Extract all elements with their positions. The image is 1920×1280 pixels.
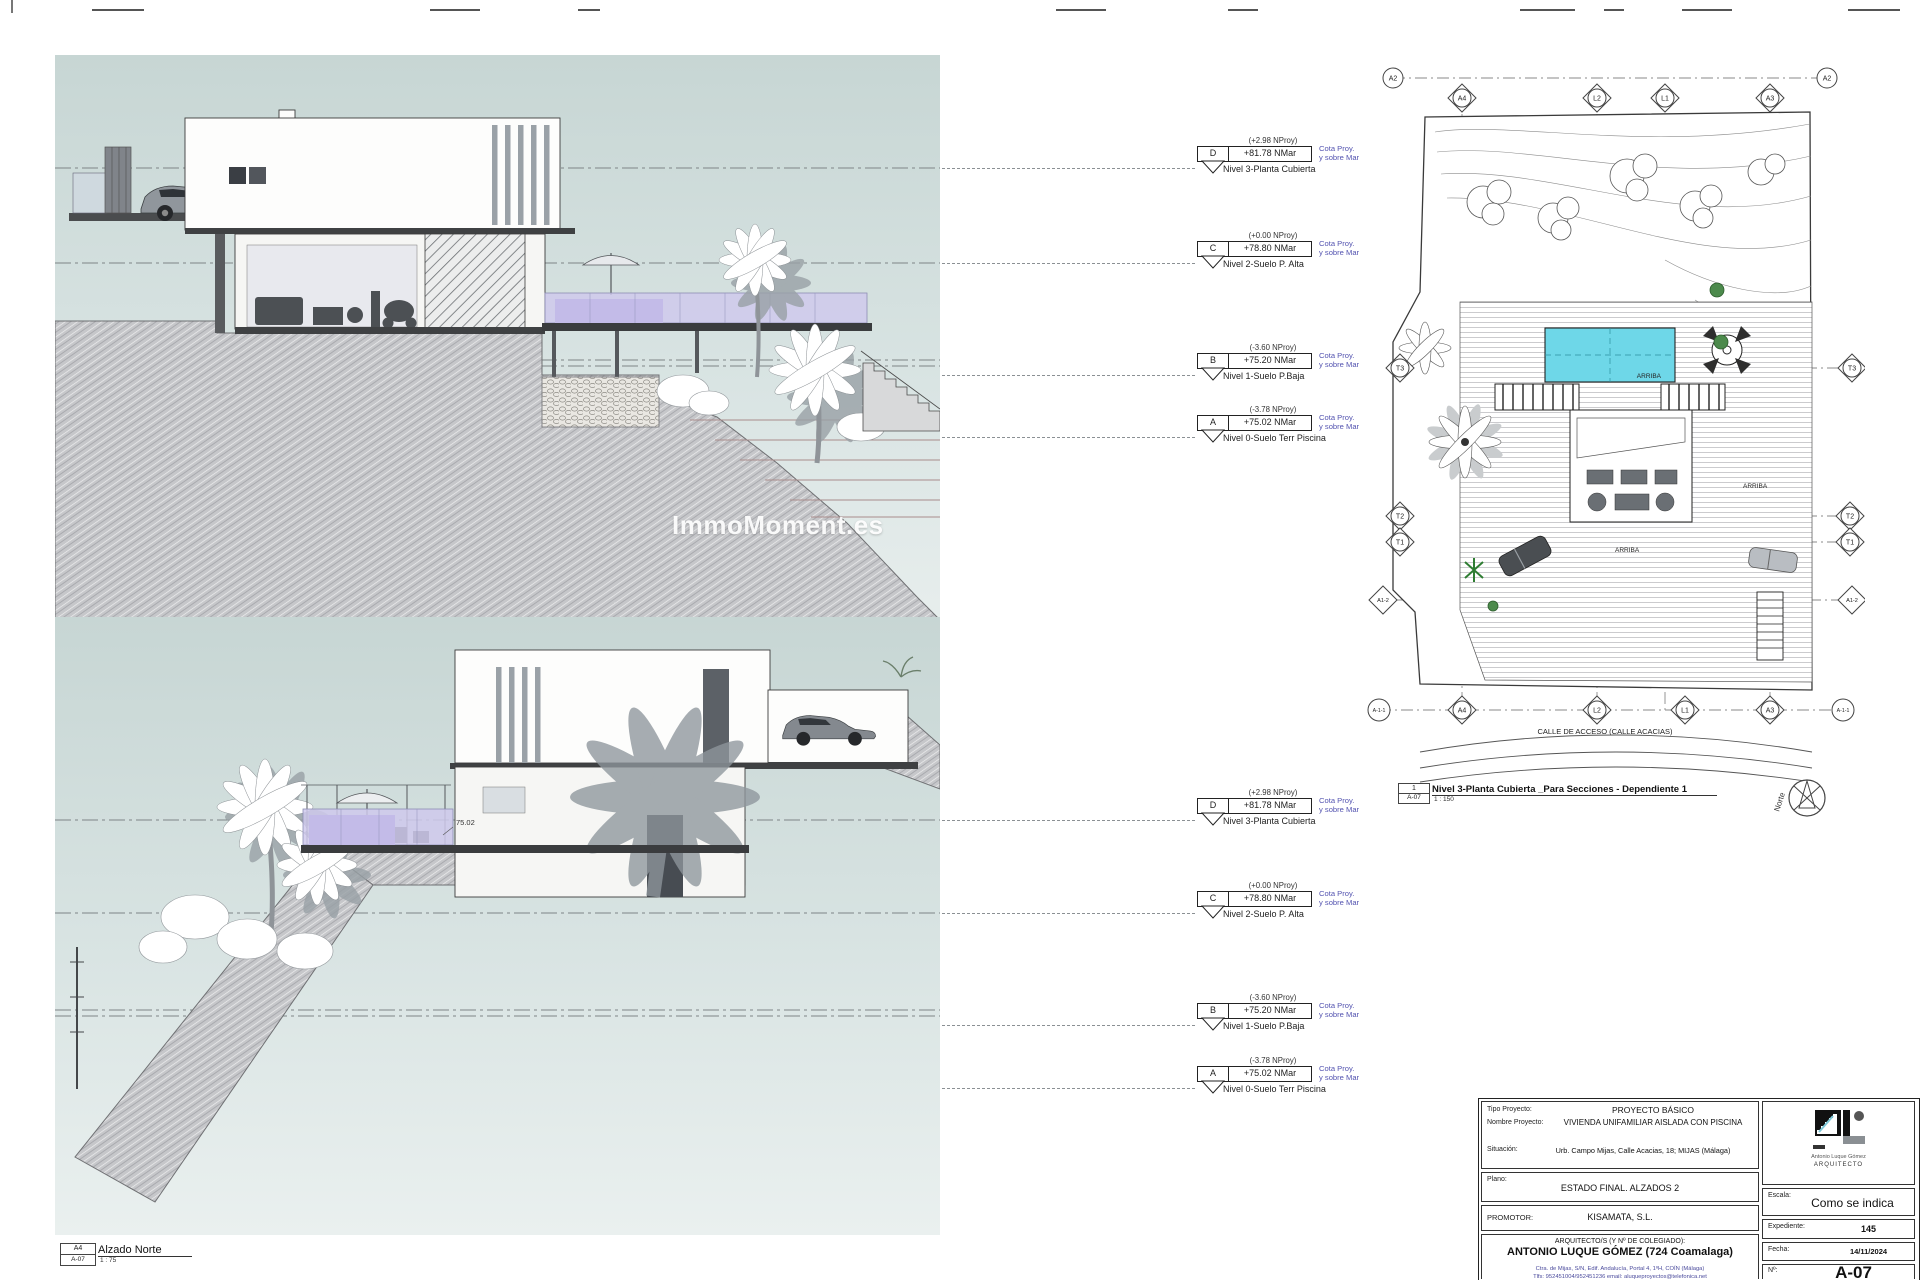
caption-title: Nivel 3-Planta Cubierta _Para Secciones …: [1432, 784, 1717, 796]
level-letter: C: [1198, 242, 1229, 256]
situacion-label: Situación:: [1487, 1146, 1518, 1153]
logo-title: ARQUITECTO: [1763, 1162, 1914, 1168]
caption-north-elevation: A4 A-07 Alzado Norte 1 : 75: [60, 1243, 260, 1267]
level-leader: [942, 168, 1195, 169]
level-name: Nivel 1-Suelo P.Baja: [1223, 1021, 1304, 1031]
elevation-south-drawing: [55, 55, 940, 655]
arquitecto-value: ANTONIO LUQUE GÓMEZ (724 Coamalaga): [1482, 1246, 1758, 1258]
arriba-label: ARRIBA: [1637, 373, 1662, 380]
stairs-plan: [1757, 592, 1783, 660]
svg-text:A-1-1: A-1-1: [1373, 708, 1386, 714]
pool-glass-balustrade: [303, 809, 453, 845]
level-notes: Cota Proy.y sobre Mar: [1319, 796, 1359, 814]
trim-mark: [1228, 9, 1258, 11]
fecha-label: Fecha:: [1768, 1246, 1789, 1253]
level-value: +75.02 NMar: [1229, 1067, 1311, 1081]
caption-sheet: A-07: [61, 1255, 95, 1264]
window: [229, 167, 246, 184]
caption-ref: A4: [61, 1244, 95, 1255]
tipo-proyecto-value: PROYECTO BÁSICO: [1552, 1105, 1754, 1115]
level-notes: Cota Proy.y sobre Mar: [1319, 1064, 1359, 1082]
logo-box: Antonio Luque Gómez ARQUITECTO: [1762, 1101, 1915, 1185]
level-name: Nivel 3-Planta Cubierta: [1223, 816, 1316, 826]
level-letter: D: [1198, 799, 1229, 813]
svg-text:A4: A4: [1458, 96, 1467, 103]
svg-text:A2: A2: [1389, 76, 1398, 83]
level-nproy: (-3.78 NProy): [1231, 405, 1315, 415]
level-arrow-icon: [1201, 812, 1225, 826]
level-value: +75.20 NMar: [1229, 354, 1311, 368]
plano-box: Plano: ESTADO FINAL. ALZADOS 2: [1481, 1172, 1759, 1202]
deck-slab: [301, 845, 749, 853]
courtyard: [1570, 410, 1692, 522]
nombre-proyecto-label: Nombre Proyecto:: [1487, 1119, 1543, 1126]
caption-scale: 1 : 150: [1434, 796, 1454, 803]
retaining-wall: [215, 221, 225, 333]
level-letter: A: [1198, 416, 1229, 430]
caption-scale: 1 : 75: [100, 1257, 116, 1264]
level-value: +75.02 NMar: [1229, 416, 1311, 430]
arquitecto-address: Ctra. de Mijas, S/N, Edif. Andalucía, Po…: [1482, 1266, 1758, 1272]
level-name: Nivel 2-Suelo P. Alta: [1223, 259, 1304, 269]
trim-mark: [1682, 9, 1732, 11]
fecha-value: 14/11/2024: [1823, 1247, 1914, 1256]
escala-label: Escala:: [1768, 1192, 1791, 1199]
level-value: +81.78 NMar: [1229, 799, 1311, 813]
arquitecto-contact: Tlfs: 952451004/952451236 email: aluquep…: [1482, 1274, 1758, 1280]
level-notes: Cota Proy.y sobre Mar: [1319, 413, 1359, 431]
level-arrow-icon: [1201, 429, 1225, 443]
promotor-box: PROMOTOR: KISAMATA, S.L.: [1481, 1205, 1759, 1231]
pool-level-label: 75.02: [456, 818, 475, 827]
level-leader: [942, 437, 1195, 438]
caption-ref: 1: [1399, 784, 1429, 794]
level-name: Nivel 3-Planta Cubierta: [1223, 164, 1316, 174]
level-name: Nivel 0-Suelo Terr Piscina: [1223, 1084, 1326, 1094]
arquitecto-label: ARQUITECTO/S (Y Nº DE COLEGIADO):: [1482, 1238, 1758, 1245]
north-label: Norte: [1772, 791, 1787, 813]
level-leader: [942, 263, 1195, 264]
level-arrow-icon: [1201, 160, 1225, 174]
road-lines: [1420, 735, 1812, 782]
chimney-tower: [105, 147, 131, 213]
level-nproy: (-3.60 NProy): [1231, 343, 1315, 353]
numero-label: Nº:: [1768, 1267, 1778, 1274]
window: [483, 787, 525, 813]
level-letter: D: [1198, 147, 1229, 161]
level-notes: Cota Proy.y sobre Mar: [1319, 1001, 1359, 1019]
expediente-label: Expediente:: [1768, 1223, 1805, 1230]
trim-mark: [1520, 9, 1575, 11]
level-value: +78.80 NMar: [1229, 892, 1311, 906]
promotor-value: KISAMATA, S.L.: [1482, 1212, 1758, 1222]
level-letter: C: [1198, 892, 1229, 906]
plano-label: Plano:: [1487, 1176, 1507, 1183]
svg-text:T3: T3: [1396, 366, 1404, 373]
level-nproy: (+2.98 NProy): [1231, 788, 1315, 798]
level-name: Nivel 2-Suelo P. Alta: [1223, 909, 1304, 919]
louvre-wall: [425, 234, 525, 329]
plan-sheet: ImmoMoment.es A3 A-07 Alzado Sur 1 : 75: [0, 0, 1920, 1280]
tipo-proyecto-label: Tipo Proyecto:: [1487, 1106, 1532, 1113]
numero-value: A-07: [1793, 1263, 1914, 1280]
trim-mark: [92, 9, 144, 11]
svg-text:L1: L1: [1661, 96, 1669, 103]
svg-text:A3: A3: [1766, 96, 1775, 103]
pool-glass-balustrade: [545, 293, 867, 323]
level-notes: Cota Proy.y sobre Mar: [1319, 144, 1359, 162]
level-value: +75.20 NMar: [1229, 1004, 1311, 1018]
level-nproy: (+0.00 NProy): [1231, 881, 1315, 891]
level-letter: B: [1198, 354, 1229, 368]
level-leader: [942, 1088, 1195, 1089]
situacion-value: Urb. Campo Mijas, Calle Acacias, 18; MIJ…: [1530, 1146, 1756, 1155]
architect-logo-icon: [1813, 1108, 1867, 1152]
level-notes: Cota Proy.y sobre Mar: [1319, 239, 1359, 257]
logo-name: Antonio Luque Gómez: [1763, 1154, 1914, 1160]
window: [249, 167, 266, 184]
arriba-label: ARRIBA: [1743, 483, 1768, 490]
numero-box: Nº: A-07: [1762, 1264, 1915, 1279]
svg-text:T3: T3: [1848, 366, 1856, 373]
svg-text:L1: L1: [1681, 708, 1689, 715]
floor-slab: [235, 327, 545, 334]
plano-value: ESTADO FINAL. ALZADOS 2: [1482, 1183, 1758, 1193]
nombre-proyecto-value: VIVIENDA UNIFAMILIAR AISLADA CON PISCINA: [1552, 1118, 1754, 1128]
svg-text:A2: A2: [1823, 76, 1832, 83]
level-notes: Cota Proy.y sobre Mar: [1319, 889, 1359, 907]
pool-water: [555, 299, 663, 323]
svg-text:A-1-1: A-1-1: [1837, 708, 1850, 714]
caption-sheet: A-07: [1399, 794, 1429, 802]
escala-value: Como se indica: [1791, 1196, 1914, 1210]
trim-mark: [1604, 9, 1624, 11]
level-name: Nivel 1-Suelo P.Baja: [1223, 371, 1304, 381]
svg-text:L2: L2: [1593, 708, 1601, 715]
arriba-label: ARRIBA: [1615, 547, 1640, 554]
level-arrow-icon: [1201, 1017, 1225, 1031]
deck-slab: [542, 323, 872, 331]
level-arrow-icon: [1201, 367, 1225, 381]
title-block: Tipo Proyecto: PROYECTO BÁSICO Nombre Pr…: [1478, 1098, 1920, 1280]
gabion-wall: [542, 377, 659, 427]
level-arrow-icon: [1201, 1080, 1225, 1094]
level-leader: [942, 820, 1195, 821]
level-value: +81.78 NMar: [1229, 147, 1311, 161]
fecha-box: Fecha: 14/11/2024: [1762, 1242, 1915, 1261]
level-notes: Cota Proy.y sobre Mar: [1319, 351, 1359, 369]
level-nproy: (-3.78 NProy): [1231, 1056, 1315, 1066]
north-arrow-icon: [1789, 780, 1825, 816]
expediente-value: 145: [1823, 1224, 1914, 1234]
level-leader: [942, 913, 1195, 914]
glass-screen: [73, 173, 107, 213]
svg-text:T1: T1: [1846, 540, 1854, 547]
garage-slab: [768, 762, 918, 769]
level-arrow-icon: [1201, 905, 1225, 919]
svg-text:A1-2: A1-2: [1377, 598, 1389, 604]
level-leader: [942, 1025, 1195, 1026]
floor-slab: [185, 228, 575, 234]
caption-title: Alzado Norte: [98, 1244, 192, 1257]
svg-text:T1: T1: [1396, 540, 1404, 547]
svg-text:T2: T2: [1396, 514, 1404, 521]
level-letter: B: [1198, 1004, 1229, 1018]
level-letter: A: [1198, 1067, 1229, 1081]
caption-site-plan: 1 A-07 Nivel 3-Planta Cubierta _Para Sec…: [1398, 783, 1738, 807]
site-plan-drawing: ARRIBA: [1365, 50, 1865, 850]
svg-text:A4: A4: [1458, 708, 1467, 715]
svg-text:L2: L2: [1593, 96, 1601, 103]
svg-text:A3: A3: [1766, 708, 1775, 715]
trim-mark: [578, 9, 600, 11]
level-name: Nivel 0-Suelo Terr Piscina: [1223, 433, 1326, 443]
watermark: ImmoMoment.es: [672, 510, 884, 541]
trim-mark: [430, 9, 480, 11]
caption-ref-box: A4 A-07: [60, 1243, 96, 1266]
level-nproy: (-3.60 NProy): [1231, 993, 1315, 1003]
svg-text:T2: T2: [1846, 514, 1854, 521]
trim-mark: [1056, 9, 1106, 11]
level-arrow-icon: [1201, 255, 1225, 269]
caption-ref-box: 1 A-07: [1398, 783, 1430, 804]
level-nproy: (+2.98 NProy): [1231, 136, 1315, 146]
corner-mark: [11, 0, 13, 13]
escala-box: Escala: Como se indica: [1762, 1188, 1915, 1216]
arquitecto-box: ARQUITECTO/S (Y Nº DE COLEGIADO): ANTONI…: [1481, 1234, 1759, 1279]
svg-text:A1-2: A1-2: [1846, 598, 1858, 604]
project-info-box: Tipo Proyecto: PROYECTO BÁSICO Nombre Pr…: [1481, 1101, 1759, 1169]
level-nproy: (+0.00 NProy): [1231, 231, 1315, 241]
expediente-box: Expediente: 145: [1762, 1219, 1915, 1239]
pool-water: [309, 815, 395, 845]
trim-mark: [1848, 9, 1900, 11]
level-value: +78.80 NMar: [1229, 242, 1311, 256]
elevation-north-drawing: 75.02: [55, 617, 940, 1235]
level-leader: [942, 375, 1195, 376]
